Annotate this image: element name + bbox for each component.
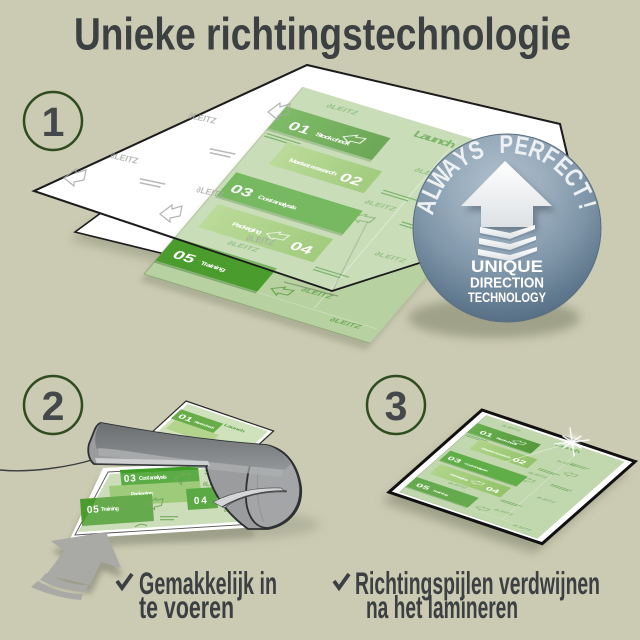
svg-text:P: P bbox=[499, 130, 513, 159]
svg-text:TECHNOLOGY: TECHNOLOGY bbox=[468, 289, 547, 305]
svg-text:Unieke richtingstechnologie: Unieke richtingstechnologie bbox=[74, 9, 571, 60]
svg-text:2: 2 bbox=[42, 383, 65, 429]
svg-text:1: 1 bbox=[42, 99, 65, 145]
svg-text:3: 3 bbox=[385, 383, 408, 429]
svg-text:te voeren: te voeren bbox=[139, 589, 234, 625]
svg-text:UNIQUE: UNIQUE bbox=[471, 258, 543, 276]
svg-text:na het lamineren: na het lamineren bbox=[366, 589, 518, 625]
